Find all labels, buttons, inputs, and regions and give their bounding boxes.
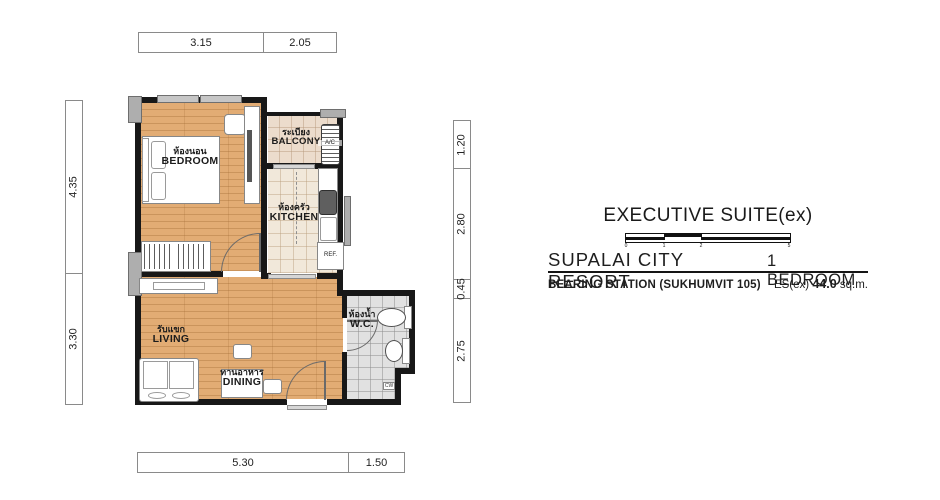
kitchen-label: ห้องครัว KITCHEN <box>262 202 326 224</box>
nightstand <box>224 114 246 135</box>
living-label: รับแขก LIVING <box>139 324 203 346</box>
divider-rule <box>548 271 868 273</box>
sofa-cushion <box>169 361 194 389</box>
floor-plan-sheet: 3.15 2.05 5.30 1.50 4.35 3.30 1.20 2.80 … <box>0 0 940 500</box>
wc-label-en: W.C. <box>342 319 382 331</box>
area-prefix: ES(ex) <box>774 279 809 291</box>
balcony-label: ระเบียง BALCONY <box>264 127 328 148</box>
dimension-value: 0.45 <box>454 279 470 298</box>
dimension-value: 4.35 <box>66 101 82 273</box>
dimension-value: 1.50 <box>348 453 404 472</box>
dimension-value: 3.30 <box>66 273 82 404</box>
wall <box>342 352 347 405</box>
scale-segment <box>626 237 665 240</box>
title-block: EXECUTIVE SUITE(ex) 0 1 2 5 SUPALAI CITY… <box>548 205 868 305</box>
dining-label-en: DINING <box>209 377 275 389</box>
tv-icon <box>247 130 252 182</box>
wall <box>261 97 267 277</box>
entrance-door-leaf <box>324 361 326 400</box>
scale-bar: 0 1 2 5 <box>625 233 791 243</box>
dimension-bar-left: 4.35 3.30 <box>65 100 83 405</box>
bed-headboard <box>142 138 149 202</box>
kitchen-sliding-door <box>268 274 316 279</box>
dimension-value: 5.30 <box>138 453 348 472</box>
column <box>320 109 346 118</box>
scale-segment <box>665 237 702 240</box>
dimension-value: 2.75 <box>454 298 470 402</box>
entrance-landing <box>287 405 327 410</box>
dimension-value: 2.80 <box>454 168 470 279</box>
wardrobe-hangers <box>178 244 208 269</box>
tv-console-screen <box>153 282 205 290</box>
column <box>128 96 142 123</box>
fridge-label: REF. <box>317 252 344 258</box>
sofa-pillow <box>172 392 190 399</box>
area-unit: sq.m. <box>840 279 868 291</box>
area-value: 44.0 <box>812 277 836 291</box>
living-label-en: LIVING <box>139 334 203 346</box>
scale-segment <box>702 237 790 240</box>
bedroom-label-en: BEDROOM <box>150 156 230 168</box>
sofa-cushion <box>143 361 168 389</box>
wall <box>327 399 401 405</box>
dining-label: ทานอาหาร DINING <box>209 367 275 389</box>
dimension-value: 1.20 <box>454 121 470 168</box>
wc-label: ห้องน้ำ W.C. <box>342 309 382 331</box>
scale-bar-row <box>626 237 790 240</box>
toilet-tank <box>402 338 410 364</box>
bedroom-label: ห้องนอน BEDROOM <box>150 146 230 168</box>
dimension-bar-right: 1.20 2.80 0.45 2.75 <box>453 120 471 403</box>
wall <box>337 290 415 296</box>
unit-heading: EXECUTIVE SUITE(ex) <box>548 205 868 227</box>
dimension-value: 2.05 <box>263 33 336 52</box>
bedroom-window <box>200 95 242 103</box>
balcony-sliding-door <box>273 164 315 169</box>
bedroom-window <box>157 95 199 103</box>
kitchen-label-en: KITCHEN <box>262 212 326 224</box>
bedroom-door-leaf <box>259 233 261 272</box>
dimension-value: 3.15 <box>139 33 263 52</box>
unit-area: ES(ex) 44.0 sq.m. <box>774 277 868 291</box>
station-row: BEARING STATION (SUKHUMVIT 105) ES(ex) 4… <box>548 277 868 291</box>
toilet-bowl <box>385 340 403 362</box>
dimension-bar-bottom: 5.30 1.50 <box>137 452 405 473</box>
balcony-label-en: BALCONY <box>264 137 328 148</box>
column <box>344 196 351 246</box>
station-name: BEARING STATION (SUKHUMVIT 105) <box>548 279 761 291</box>
wardrobe-hangers <box>144 244 174 269</box>
wall <box>395 368 401 405</box>
pillow <box>151 172 166 200</box>
cw-label: CW <box>383 383 395 389</box>
sofa-pillow <box>148 392 166 399</box>
balcony-railing <box>267 112 323 116</box>
dimension-bar-top: 3.15 2.05 <box>138 32 337 53</box>
dining-chair <box>233 344 252 359</box>
